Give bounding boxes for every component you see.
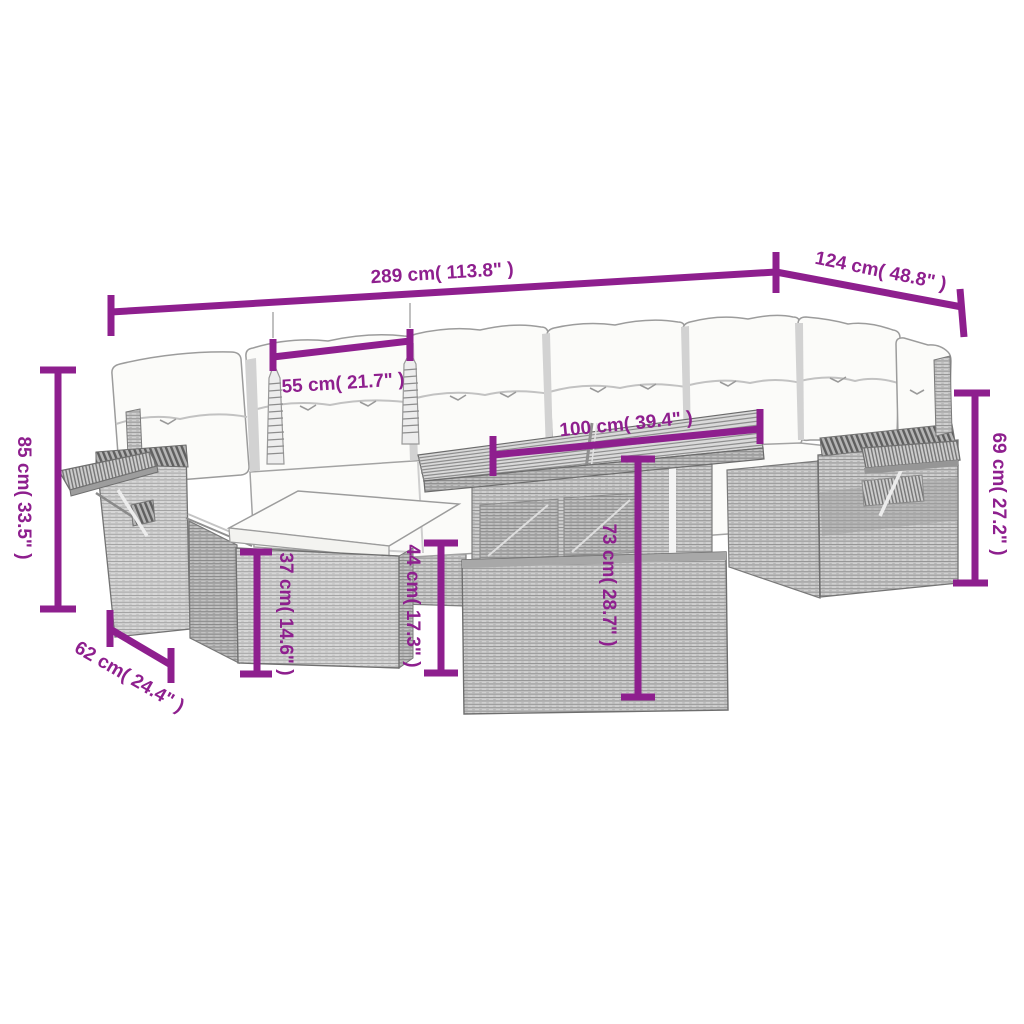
svg-text:289 cm( 113.8" ): 289 cm( 113.8" ) (370, 259, 514, 288)
svg-text:69 cm( 27.2" ): 69 cm( 27.2" ) (988, 432, 1009, 555)
svg-text:85 cm( 33.5" ): 85 cm( 33.5" ) (13, 436, 34, 559)
svg-text:37 cm( 14.6" ): 37 cm( 14.6" ) (275, 552, 296, 675)
svg-text:124 cm( 48.8" ): 124 cm( 48.8" ) (813, 248, 948, 295)
svg-text:73 cm( 28.7" ): 73 cm( 28.7" ) (598, 523, 619, 646)
svg-text:44 cm( 17.3" ): 44 cm( 17.3" ) (402, 544, 423, 667)
